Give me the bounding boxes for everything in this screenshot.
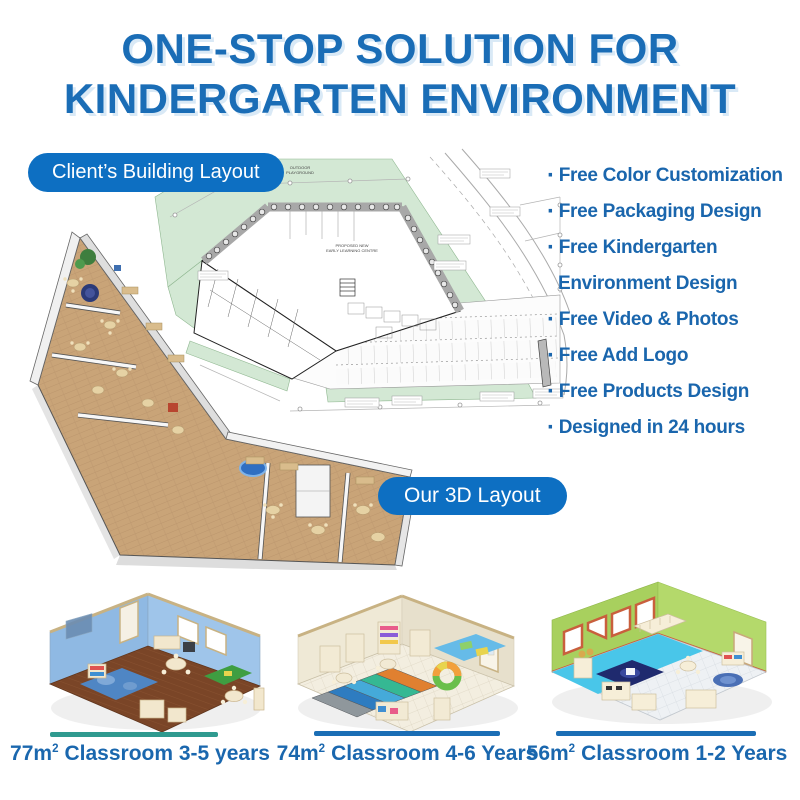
feature-item: · Free Color Customization (547, 158, 797, 194)
feature-item: · Free Products Design (547, 374, 797, 410)
caption-divider-1 (50, 732, 218, 737)
feature-item: · Designed in 24 hours (547, 410, 797, 446)
classroom-caption-3: 56m2Classroom 1-2 Years (522, 742, 792, 766)
caption-divider-3 (556, 731, 756, 736)
feature-text: Free Kindergarten (559, 230, 718, 266)
our-3d-layout-badge: Our 3D Layout (378, 477, 567, 515)
feature-text: Free Video & Photos (559, 302, 739, 338)
feature-item: · Free Video & Photos (547, 302, 797, 338)
classroom-name: Classroom 3-5 years (65, 742, 270, 765)
classroom-name: Classroom 1-2 Years (581, 742, 787, 765)
feature-text: Environment Design (558, 266, 737, 302)
feature-item: · Free Kindergarten (547, 230, 797, 266)
bullet-icon: · (547, 374, 555, 410)
classroom-render-3-5 (28, 580, 272, 740)
feature-item: · Free Packaging Design (547, 194, 797, 230)
promo-page: ONE-STOP SOLUTION FOR KINDERGARTEN ENVIR… (0, 0, 800, 800)
feature-list: · Free Color Customization · Free Packag… (547, 158, 797, 446)
feature-item: · Free Add Logo (547, 338, 797, 374)
feature-item-continuation: Environment Design (547, 266, 797, 302)
classroom-render-4-6 (284, 586, 528, 744)
feature-text: Free Packaging Design (559, 194, 762, 230)
classroom-area: 74m (277, 742, 319, 765)
bullet-icon: · (547, 302, 555, 338)
bullet-icon: · (547, 158, 555, 194)
bullet-icon: · (547, 230, 555, 266)
bullet-icon: · (547, 410, 555, 446)
title-line-2: KINDERGARTEN ENVIRONMENT (0, 74, 800, 124)
client-layout-badge: Client’s Building Layout (28, 153, 284, 192)
classroom-area: 56m (527, 742, 569, 765)
feature-text: Free Color Customization (559, 158, 783, 194)
feature-text: Free Add Logo (559, 338, 688, 374)
bullet-icon: · (547, 338, 555, 374)
classroom-caption-2: 74m2Classroom 4-6 Years (272, 742, 542, 766)
client-layout-badge-label: Client’s Building Layout (52, 161, 260, 184)
classroom-name: Classroom 4-6 Years (331, 742, 537, 765)
plan-label-outdoor-2: PLAYGROUND (286, 170, 314, 175)
classroom-render-1-2 (538, 574, 784, 740)
bullet-icon: · (547, 194, 555, 230)
page-title: ONE-STOP SOLUTION FOR KINDERGARTEN ENVIR… (0, 24, 800, 124)
feature-text: Designed in 24 hours (559, 410, 745, 446)
our-3d-layout-badge-label: Our 3D Layout (404, 484, 541, 508)
feature-text: Free Products Design (559, 374, 749, 410)
title-line-1: ONE-STOP SOLUTION FOR (0, 24, 800, 74)
classroom-area: 77m (10, 742, 52, 765)
caption-divider-2 (314, 731, 500, 736)
classroom-caption-1: 77m2Classroom 3-5 years (5, 742, 275, 766)
three-d-building-layout (18, 225, 418, 570)
